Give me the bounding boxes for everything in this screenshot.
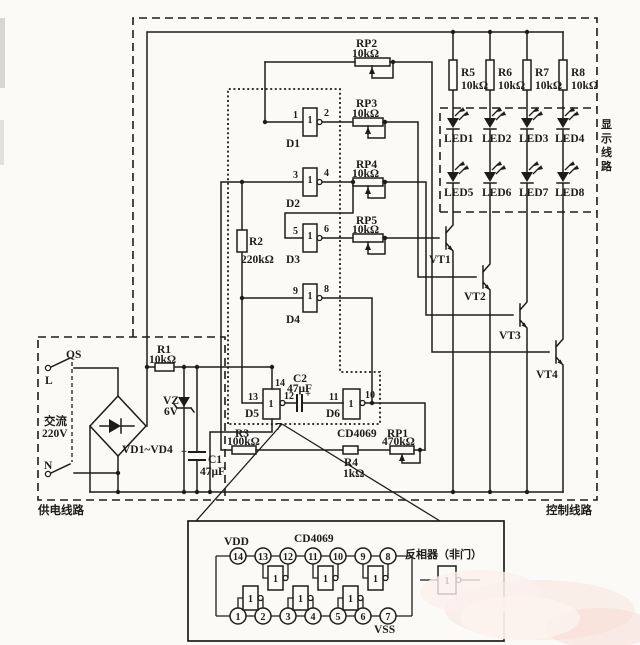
vt3-label: VT3 [499, 330, 521, 342]
ac-label: 交流 [44, 414, 67, 428]
diode-icon [109, 419, 121, 433]
d6-sym: 1 [349, 399, 354, 410]
svg-text:8: 8 [386, 552, 391, 563]
led7-icon [521, 161, 543, 183]
l-label: L [45, 375, 53, 387]
d5-name: D5 [245, 408, 259, 420]
terminal-L [45, 365, 50, 370]
d4-name: D4 [286, 314, 300, 326]
svg-text:13: 13 [258, 552, 268, 563]
svg-text:5: 5 [336, 612, 341, 623]
vss-label: VSS [374, 624, 395, 636]
led1-label: LED1 [444, 133, 474, 145]
r8-name: R8 [571, 67, 585, 79]
pinout-inverters: 1 1 1 1 1 1 [238, 564, 388, 610]
schematic-page: QS L N 交流 220V VD1~VD4 R1 10kΩ VZ 6V + C… [0, 0, 640, 645]
svg-text:1: 1 [248, 594, 253, 605]
vz-value: 6V [164, 406, 179, 418]
d3-sym: 1 [308, 231, 313, 242]
d2-pin-out: 4 [324, 168, 329, 179]
qs-label: QS [66, 349, 81, 361]
svg-text:1: 1 [348, 594, 353, 605]
r6-value: 10kΩ [498, 80, 525, 92]
led2-label: LED2 [482, 133, 512, 145]
vt1-label: VT1 [429, 254, 451, 266]
bridge-label: VD1~VD4 [122, 444, 173, 456]
svg-text:显: 显 [601, 118, 612, 131]
resistor-r5 [449, 60, 457, 90]
svg-text:6: 6 [361, 612, 366, 623]
svg-text:1: 1 [236, 612, 241, 623]
vdd-label: VDD [224, 536, 249, 548]
d2-sym: 1 [308, 175, 313, 186]
capacitor-c2 [297, 395, 302, 411]
d6-name: D6 [326, 408, 340, 420]
vt4-label: VT4 [536, 369, 558, 381]
pinout-title: CD4069 [294, 533, 334, 545]
rp3-value: 10kΩ [352, 108, 379, 120]
led7-label: LED7 [519, 187, 549, 199]
led6-icon [484, 161, 506, 183]
r5-value: 10kΩ [461, 80, 488, 92]
d5-pin-vdd: 14 [275, 378, 285, 389]
led-symbols [447, 107, 579, 183]
top-pin-circles: 14 13 12 11 10 9 8 [230, 548, 396, 564]
led2-icon [484, 107, 506, 129]
led8-label: LED8 [555, 187, 585, 199]
led3-label: LED3 [519, 133, 549, 145]
d2-name: D2 [286, 198, 300, 210]
svg-text:2: 2 [261, 612, 266, 623]
rp2-value: 10kΩ [352, 48, 379, 60]
circuit-schematic: QS L N 交流 220V VD1~VD4 R1 10kΩ VZ 6V + C… [0, 0, 640, 645]
display-region-label: 显 示 线 路 [600, 118, 613, 173]
cd4069-label: CD4069 [337, 428, 377, 440]
svg-text:14: 14 [233, 552, 243, 563]
r4-value: 1kΩ [343, 468, 364, 480]
r3-value: 100kΩ [227, 436, 260, 448]
supply-region-label: 供电线路 [37, 503, 84, 517]
c2-plus: + [305, 389, 311, 400]
d1-pin-in: 1 [293, 110, 298, 121]
svg-text:11: 11 [308, 552, 317, 563]
c1-value: 47μF [200, 466, 225, 478]
svg-text:示: 示 [600, 132, 612, 145]
svg-text:1: 1 [273, 574, 278, 585]
led5-label: LED5 [444, 187, 474, 199]
d5-pin-vss: 7 [276, 422, 281, 433]
d5-pin-in: 13 [248, 392, 258, 403]
power-supply-circuit: QS L N 交流 220V VD1~VD4 R1 10kΩ VZ 6V + C… [42, 344, 563, 492]
resistor-r4 [343, 446, 358, 454]
led8-icon [557, 161, 579, 183]
svg-text:10: 10 [333, 552, 343, 563]
d3-pin-out: 6 [324, 224, 329, 235]
d6-pin-out: 10 [365, 390, 375, 401]
d4-pin-out: 8 [324, 284, 329, 295]
d1-name: D1 [286, 138, 300, 150]
d5-sym: 1 [269, 399, 274, 410]
led5-icon [447, 161, 469, 183]
r7-name: R7 [535, 67, 549, 79]
ac-voltage: 220V [42, 428, 68, 440]
rp5-value: 10kΩ [352, 224, 379, 236]
led4-icon [557, 107, 579, 129]
svg-text:1: 1 [373, 574, 378, 585]
legend-label: 反相器（非门） [405, 547, 482, 561]
d1-sym: 1 [308, 115, 313, 126]
display-and-control: R5 10kΩ R6 10kΩ R7 10kΩ R8 10kΩ LED1 LED… [429, 32, 598, 492]
d2-pin-in: 3 [293, 170, 298, 181]
n-label: N [44, 460, 53, 472]
r1-value: 10kΩ [149, 354, 176, 366]
d3-name: D3 [286, 254, 300, 266]
svg-text:12: 12 [283, 552, 293, 563]
svg-text:线: 线 [601, 145, 612, 159]
led6-label: LED6 [482, 187, 512, 199]
d1-pin-out: 2 [324, 108, 329, 119]
led3-icon [521, 107, 543, 129]
vt2-label: VT2 [464, 291, 486, 303]
d6-pin-in: 11 [329, 392, 338, 403]
rp4-value: 10kΩ [352, 168, 379, 180]
terminal-N [45, 471, 50, 476]
led1-icon [447, 107, 469, 129]
oscillator-section: 1 1 13 12 14 7 11 10 D5 D6 C2 47μF + CD4… [196, 367, 440, 521]
r2-value: 220kΩ [241, 254, 274, 266]
svg-text:4: 4 [311, 612, 316, 623]
rp1-value: 470kΩ [382, 436, 415, 448]
d4-sym: 1 [308, 291, 313, 302]
led4-label: LED4 [555, 133, 585, 145]
r8-value: 10kΩ [571, 80, 598, 92]
c1-plus: + [181, 447, 187, 458]
zener-vz [174, 367, 194, 492]
svg-text:7: 7 [386, 612, 391, 623]
d4-pin-in: 9 [293, 286, 298, 297]
r2-name: R2 [249, 236, 263, 248]
svg-text:1: 1 [298, 594, 303, 605]
svg-text:3: 3 [286, 612, 291, 623]
r6-name: R6 [498, 67, 512, 79]
resistor-r2 [237, 230, 247, 252]
r5-name: R5 [461, 67, 475, 79]
svg-text:1: 1 [323, 574, 328, 585]
d3-pin-in: 5 [293, 226, 298, 237]
svg-text:路: 路 [601, 159, 613, 173]
svg-text:9: 9 [361, 552, 366, 563]
control-region-label: 控制线路 [546, 503, 592, 517]
r7-value: 10kΩ [535, 80, 562, 92]
